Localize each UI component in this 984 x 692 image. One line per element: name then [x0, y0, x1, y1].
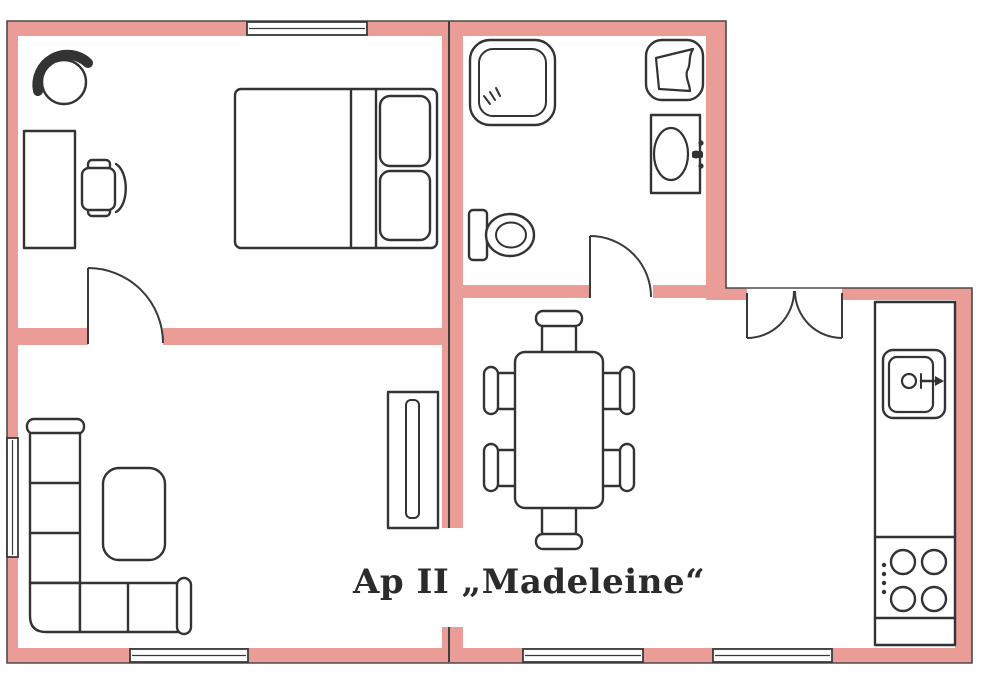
- door-bedroom: [88, 268, 163, 344]
- toilet: [469, 210, 534, 260]
- dining-chair-left-1: [484, 367, 517, 414]
- pillow: [380, 171, 430, 240]
- desk: [24, 131, 75, 248]
- wall-bathroom-bottom-right: [653, 285, 706, 298]
- pillow: [380, 96, 430, 166]
- window-dining-bottom: [523, 649, 643, 662]
- dining-chair-top: [536, 311, 582, 354]
- door-bathroom: [590, 236, 651, 298]
- armchair: [37, 55, 88, 104]
- window-living-left: [7, 438, 18, 557]
- dining-chair-right-2: [601, 444, 634, 491]
- tv-sideboard: [388, 392, 438, 528]
- window-kitchen-bottom: [713, 649, 832, 662]
- dining-chair-right-1: [601, 367, 634, 414]
- coffee-table: [103, 468, 165, 560]
- room-dining: [484, 311, 634, 549]
- wall-dining-top-right: [842, 288, 972, 300]
- window-bedroom-top: [247, 22, 367, 35]
- plan-title: Ap II „Madeleine“: [353, 562, 705, 602]
- wall-bedroom-living-left: [18, 328, 88, 345]
- wall-left: [7, 21, 18, 663]
- wall-divider-vertical-stub: [442, 627, 463, 663]
- wall-divider-vertical: [442, 21, 463, 528]
- sofa-body-horizontal: [80, 583, 188, 632]
- room-bedroom: [24, 55, 437, 248]
- sofa-armrest-top: [27, 419, 84, 434]
- double-bed: [235, 89, 437, 248]
- laundry-basket: [646, 40, 703, 100]
- dining-chair-left-2: [484, 444, 517, 491]
- kitchen-sink: [883, 350, 945, 418]
- double-door-dining: [747, 291, 842, 338]
- dining-chair-bottom: [536, 506, 582, 549]
- sofa-body-vertical: [30, 433, 80, 583]
- wall-bathroom-right: [706, 21, 726, 300]
- wall-bathroom-bottom-left: [463, 285, 590, 298]
- floor-plan: Ap II „Madeleine“: [0, 0, 984, 692]
- window-living-bottom: [130, 649, 248, 662]
- sofa-corner: [30, 583, 80, 632]
- room-kitchen: [875, 302, 955, 645]
- wall-bedroom-living-right: [163, 328, 442, 345]
- washbasin: [651, 115, 704, 193]
- wall-dining-top-left: [726, 288, 747, 300]
- dining-table: [515, 352, 603, 508]
- room-bathroom: [469, 40, 704, 260]
- wall-right: [955, 288, 972, 663]
- office-chair: [82, 160, 126, 216]
- sofa-armrest-right: [177, 578, 191, 634]
- shower: [470, 40, 555, 125]
